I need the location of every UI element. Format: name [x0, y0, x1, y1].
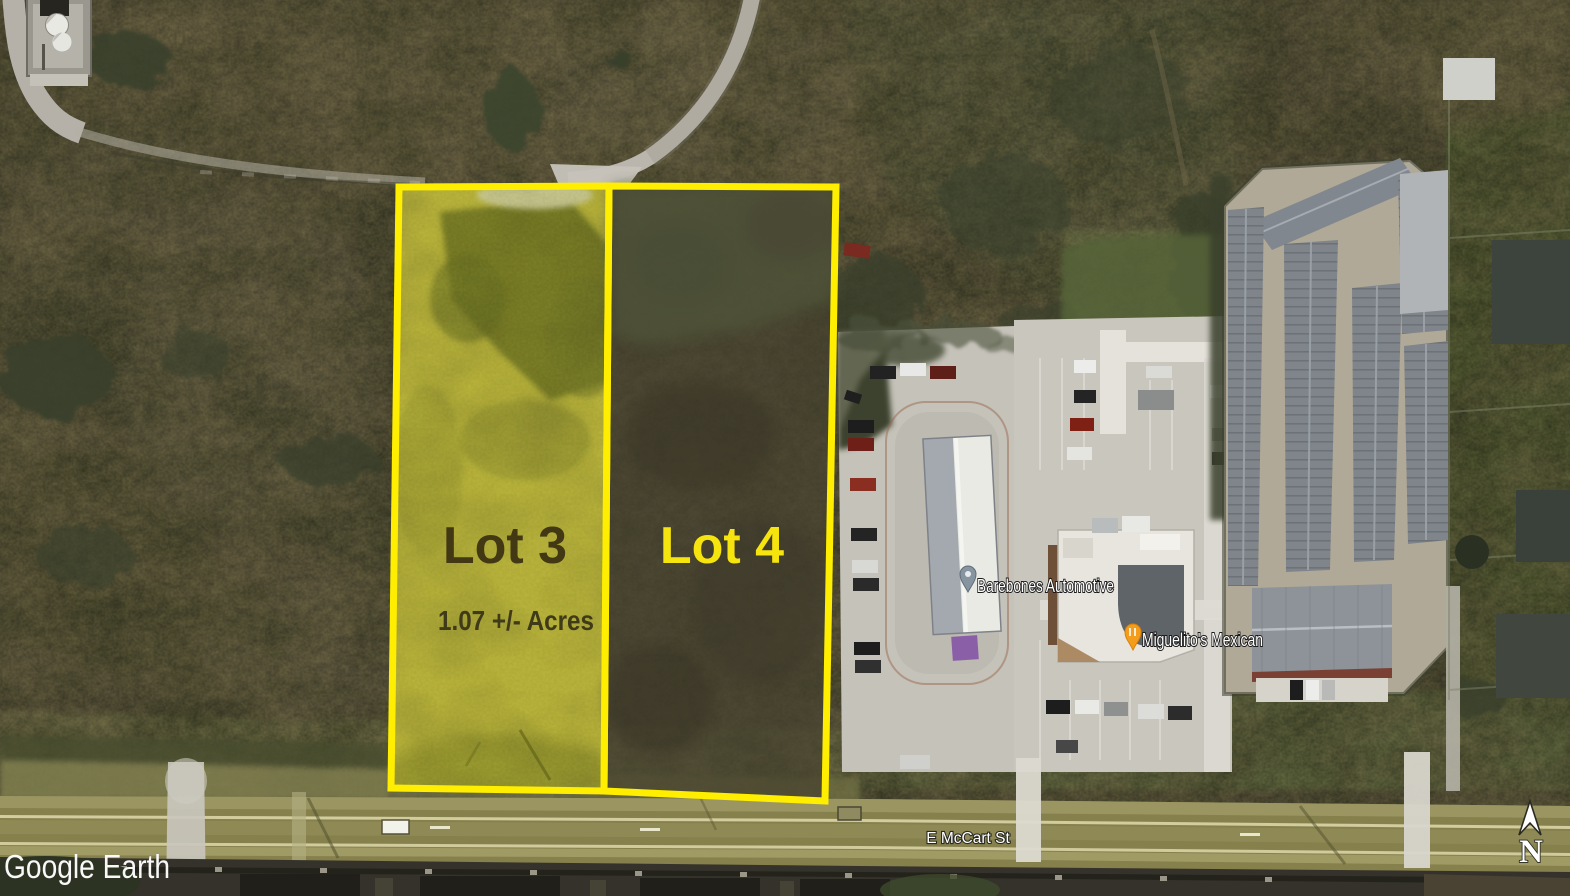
svg-text:Miguelito's Mexican: Miguelito's Mexican [1142, 630, 1263, 650]
svg-text:Google Earth: Google Earth [4, 848, 170, 885]
svg-text:E McCart St: E McCart St [926, 830, 1010, 847]
svg-text:Lot 3: Lot 3 [443, 517, 567, 575]
svg-text:Barebones Automotive: Barebones Automotive [977, 576, 1114, 596]
svg-text:N: N [1519, 834, 1543, 870]
svg-text:Lot 4: Lot 4 [660, 517, 784, 575]
svg-text:1.07 +/- Acres: 1.07 +/- Acres [438, 605, 594, 636]
